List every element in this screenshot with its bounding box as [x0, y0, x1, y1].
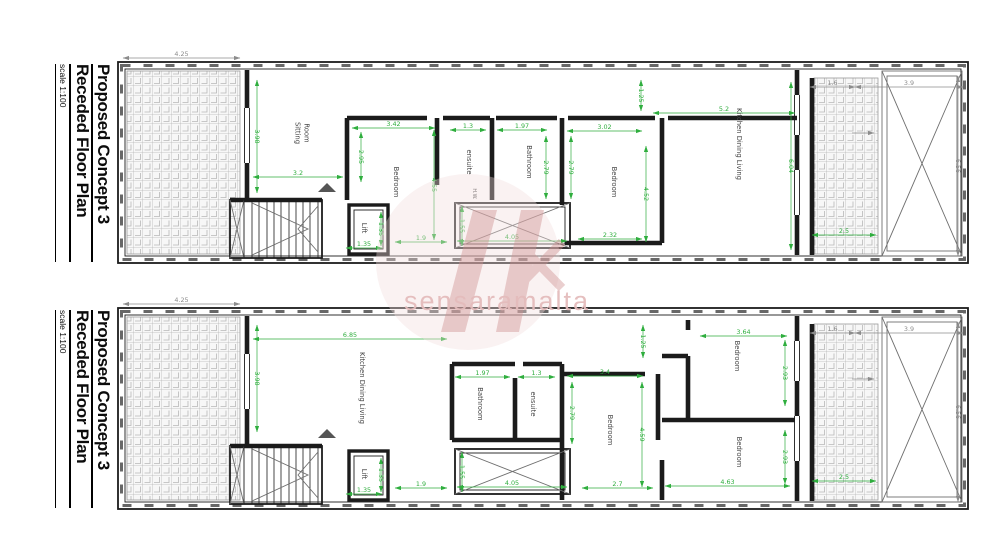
dimension-label: 1.35: [377, 468, 385, 482]
dimension-label: 1.25: [639, 334, 647, 348]
entrance-arrow: [318, 183, 336, 192]
dimension-label: 2.93: [781, 366, 789, 380]
dimension-label: 3.98: [253, 371, 261, 385]
dimension-label: 1.97: [475, 369, 489, 377]
dimension-label: 3.4: [600, 368, 610, 376]
stairs: [230, 446, 322, 504]
dimension-label: 1.97: [515, 122, 529, 130]
dimension-label: 4.63: [720, 478, 734, 486]
floor-plan-sheet: Proposed Concept 3 Receded Floor Plan sc…: [0, 0, 1000, 550]
room-label: Bathroom: [525, 145, 533, 179]
room-label: Kitchen Dining Living: [735, 108, 743, 180]
room-label: ensuite: [465, 149, 473, 174]
front-terrace: [127, 317, 240, 500]
dimension-label: 1.6: [827, 79, 837, 87]
dimension-label: 4.59: [638, 427, 646, 441]
dimension-label: 6.04: [787, 159, 795, 173]
room-label: Bedroom: [735, 437, 743, 468]
room-label: Kitchen Dining Living: [358, 352, 366, 424]
dimension-label: 1.3: [463, 122, 473, 130]
room-label: Lift: [360, 469, 368, 480]
dimension-label: 1.25: [637, 88, 645, 102]
room-label: Room: [303, 123, 311, 143]
dimension-label: 1.35: [357, 240, 371, 248]
front-terrace: [127, 71, 240, 254]
dimension-label: 3.9: [904, 325, 914, 333]
room-label: Bedroom: [610, 167, 618, 198]
dimension-label: 2.5: [839, 473, 849, 481]
dimension-label: 1.3: [531, 369, 541, 377]
dimension-label: 4.25: [174, 296, 188, 304]
room-label: Bedroom: [392, 167, 400, 198]
interior-walls: [230, 316, 812, 501]
dimension-label: 6.56: [954, 159, 962, 173]
dimension-label: 3.42: [386, 120, 400, 128]
dimension-label: 4.25: [174, 50, 188, 58]
room-label: Lift: [360, 223, 368, 234]
dimension-label: 1.9: [416, 480, 426, 488]
dimension-label: 3.2: [293, 169, 303, 177]
room-label: Sitting: [294, 122, 302, 144]
dimension-label: 1.35: [357, 486, 371, 494]
dimension-label: 1.55: [458, 465, 466, 479]
room-label: ensuite: [529, 391, 537, 416]
dimension-label: 3.98: [253, 129, 261, 143]
dimension-label: 2.93: [781, 450, 789, 464]
dimension-label: 2.32: [603, 231, 617, 239]
room-label: Bedroom: [606, 415, 614, 446]
room-label: Bathroom: [476, 387, 484, 421]
dimension-label: 6.85: [343, 331, 357, 339]
dimension-label: 4.05: [505, 479, 519, 487]
windows: [245, 341, 800, 461]
dimension-label: 2.5: [839, 227, 849, 235]
dimension-label: 1.6: [827, 325, 837, 333]
floor-plan-drawing: 4.253.983.23.422.954.551.31.972.792.793.…: [0, 0, 1000, 550]
dimension-label: 5.2: [719, 105, 729, 113]
dimension-label: 2.79: [568, 406, 576, 420]
watermark-text: sensaramalta: [404, 286, 590, 316]
dimension-label: 2.79: [567, 160, 575, 174]
rear-shaft: [882, 317, 962, 502]
dimension-label: 3.02: [597, 123, 611, 131]
dimension-label: 2.79: [542, 160, 550, 174]
stairs: [230, 200, 322, 258]
dimension-label: 4.52: [642, 187, 650, 201]
room-label: Bedroom: [733, 341, 741, 372]
lower-plan: 4.256.853.981.971.32.793.44.591.252.73.6…: [118, 296, 968, 509]
entrance-arrow: [318, 429, 336, 438]
dimension-label: 2.7: [612, 480, 622, 488]
dimension-label: 2.95: [357, 150, 365, 164]
dimension-label: 6.56: [954, 405, 962, 419]
watermark: sensaramalta: [376, 174, 590, 350]
rear-shaft: [882, 71, 962, 256]
dimension-label: 3.9: [904, 79, 914, 87]
dimension-label: 3.64: [736, 328, 750, 336]
